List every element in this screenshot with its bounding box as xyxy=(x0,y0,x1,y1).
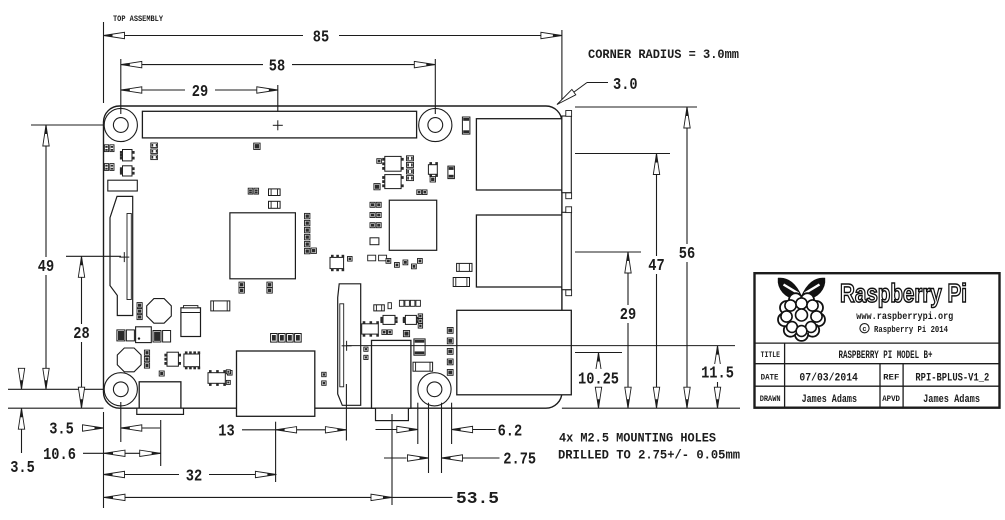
svg-text:58: 58 xyxy=(269,57,285,76)
svg-text:Raspberry Pi 2014: Raspberry Pi 2014 xyxy=(874,324,948,335)
svg-text:James Adams: James Adams xyxy=(923,394,980,406)
svg-text:REF: REF xyxy=(883,373,900,382)
svg-text:DATE: DATE xyxy=(761,373,779,382)
svg-text:29: 29 xyxy=(192,82,208,101)
svg-text:RASPBERRY PI MODEL B+: RASPBERRY PI MODEL B+ xyxy=(839,350,933,362)
svg-text:2.75: 2.75 xyxy=(503,450,536,469)
svg-text:53.5: 53.5 xyxy=(456,489,499,508)
svg-text:APVD: APVD xyxy=(882,395,900,404)
svg-text:c: c xyxy=(862,326,866,334)
svg-text:www.raspberrypi.org: www.raspberrypi.org xyxy=(856,311,953,323)
svg-text:3.5: 3.5 xyxy=(10,458,35,477)
svg-text:85: 85 xyxy=(313,28,329,47)
svg-text:07/03/2014: 07/03/2014 xyxy=(799,373,858,385)
svg-text:TITLE: TITLE xyxy=(761,351,781,360)
svg-text:32: 32 xyxy=(186,467,202,486)
svg-text:29: 29 xyxy=(620,305,636,324)
svg-text:11.5: 11.5 xyxy=(701,364,734,383)
svg-text:RPI-BPLUS-V1_2: RPI-BPLUS-V1_2 xyxy=(915,373,989,385)
svg-text:Raspberry Pi: Raspberry Pi xyxy=(840,278,967,308)
svg-text:3.5: 3.5 xyxy=(49,420,74,439)
svg-text:CORNER RADIUS = 3.0mm: CORNER RADIUS = 3.0mm xyxy=(588,48,739,62)
svg-text:49: 49 xyxy=(38,257,54,276)
svg-text:DRAWN: DRAWN xyxy=(760,395,781,404)
svg-text:4x M2.5 MOUNTING HOLES: 4x M2.5 MOUNTING HOLES xyxy=(559,432,716,446)
svg-text:DRILLED TO 2.75+/- 0.05mm: DRILLED TO 2.75+/- 0.05mm xyxy=(558,449,740,463)
svg-text:6.2: 6.2 xyxy=(498,421,523,440)
svg-text:47: 47 xyxy=(648,256,664,275)
svg-text:3.0: 3.0 xyxy=(613,75,638,94)
svg-text:10.6: 10.6 xyxy=(43,445,76,464)
svg-text:James Adams: James Adams xyxy=(802,394,857,406)
svg-text:56: 56 xyxy=(679,244,695,263)
svg-text:10.25: 10.25 xyxy=(578,370,619,389)
svg-text:TOP ASSEMBLY: TOP ASSEMBLY xyxy=(113,15,163,24)
svg-text:13: 13 xyxy=(218,422,234,441)
svg-text:28: 28 xyxy=(73,324,89,343)
